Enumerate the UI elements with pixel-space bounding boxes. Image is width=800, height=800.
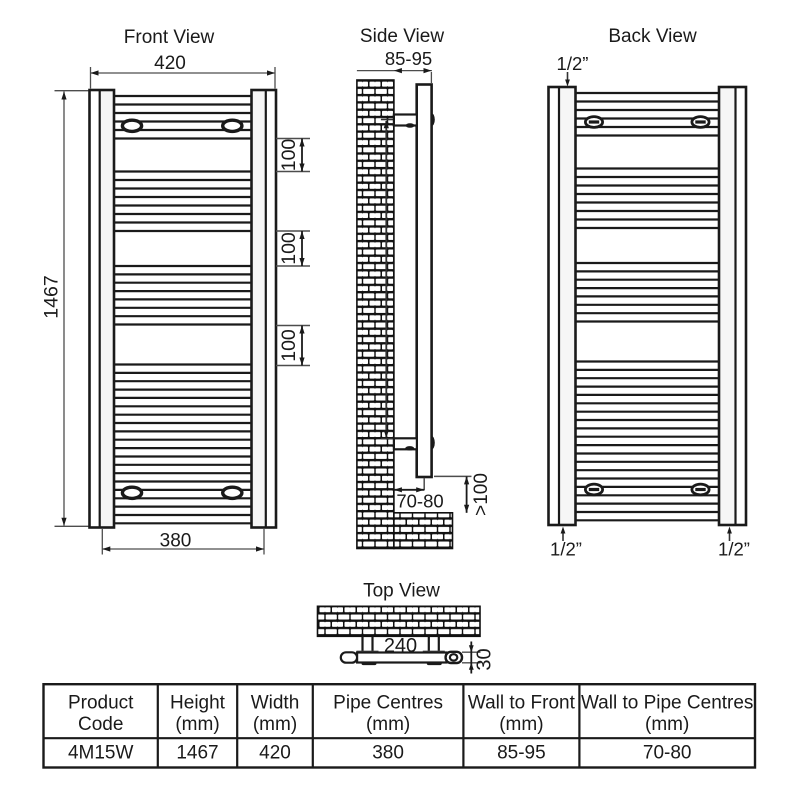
svg-text:1467: 1467 (41, 275, 63, 318)
svg-text:(mm): (mm) (645, 714, 689, 735)
svg-text:Pipe Centres: Pipe Centres (333, 693, 443, 714)
svg-text:85-95: 85-95 (385, 48, 432, 69)
svg-text:Top View: Top View (363, 581, 440, 602)
svg-text:1467: 1467 (176, 743, 218, 764)
svg-text:(mm): (mm) (175, 714, 219, 735)
svg-text:380: 380 (372, 743, 404, 764)
svg-text:1/2”: 1/2” (550, 539, 582, 560)
svg-text:Product: Product (68, 693, 134, 714)
svg-text:Front View: Front View (124, 27, 215, 48)
svg-text:>100: >100 (471, 473, 492, 516)
svg-text:1/2”: 1/2” (718, 539, 750, 560)
svg-text:420: 420 (259, 743, 291, 764)
svg-text:Back View: Back View (608, 26, 697, 47)
svg-text:85-95: 85-95 (497, 743, 546, 764)
svg-text:Code: Code (78, 714, 123, 735)
svg-text:70-80: 70-80 (643, 743, 692, 764)
svg-text:Side View: Side View (360, 26, 444, 47)
svg-text:(mm): (mm) (253, 714, 297, 735)
svg-text:100: 100 (278, 329, 300, 362)
svg-text:100: 100 (278, 139, 300, 172)
svg-text:30: 30 (474, 648, 496, 670)
svg-text:Wall to Pipe Centres: Wall to Pipe Centres (581, 693, 753, 714)
svg-text:1/2”: 1/2” (557, 53, 589, 74)
svg-text:100: 100 (278, 232, 300, 265)
svg-text:420: 420 (154, 53, 186, 74)
svg-text:(mm): (mm) (366, 714, 410, 735)
svg-text:Height: Height (170, 693, 226, 714)
svg-text:Wall to Front: Wall to Front (468, 693, 576, 714)
svg-text:Width: Width (251, 693, 300, 714)
svg-text:(mm): (mm) (499, 714, 543, 735)
svg-text:70-80: 70-80 (396, 491, 443, 512)
svg-text:380: 380 (160, 531, 192, 552)
svg-text:4M15W: 4M15W (68, 743, 134, 764)
